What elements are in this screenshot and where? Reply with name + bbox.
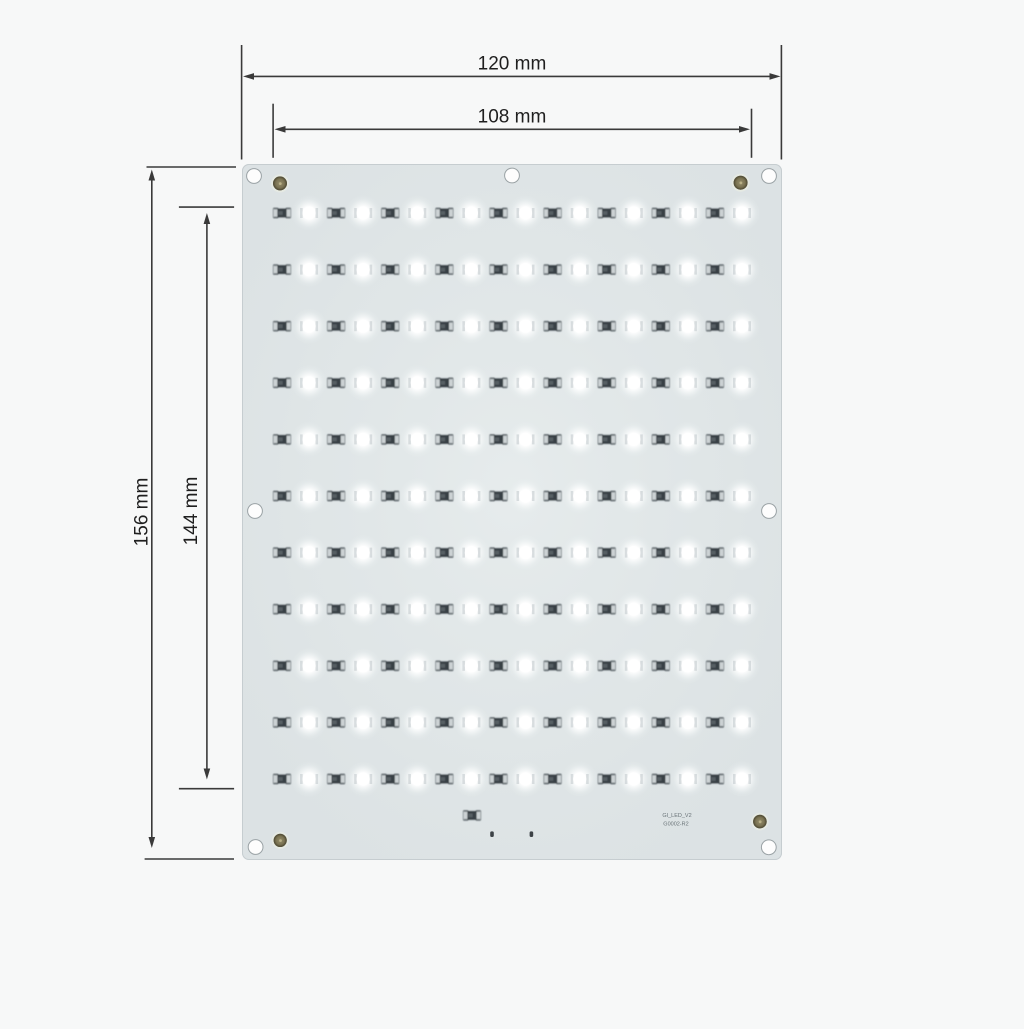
svg-text:G0002-R2: G0002-R2	[663, 822, 688, 828]
svg-text:156 mm: 156 mm	[132, 478, 153, 547]
svg-text:GI_LED_V2: GI_LED_V2	[662, 813, 691, 819]
svg-text:144 mm: 144 mm	[181, 477, 202, 546]
svg-text:120 mm: 120 mm	[478, 54, 547, 75]
svg-text:108 mm: 108 mm	[478, 107, 547, 128]
